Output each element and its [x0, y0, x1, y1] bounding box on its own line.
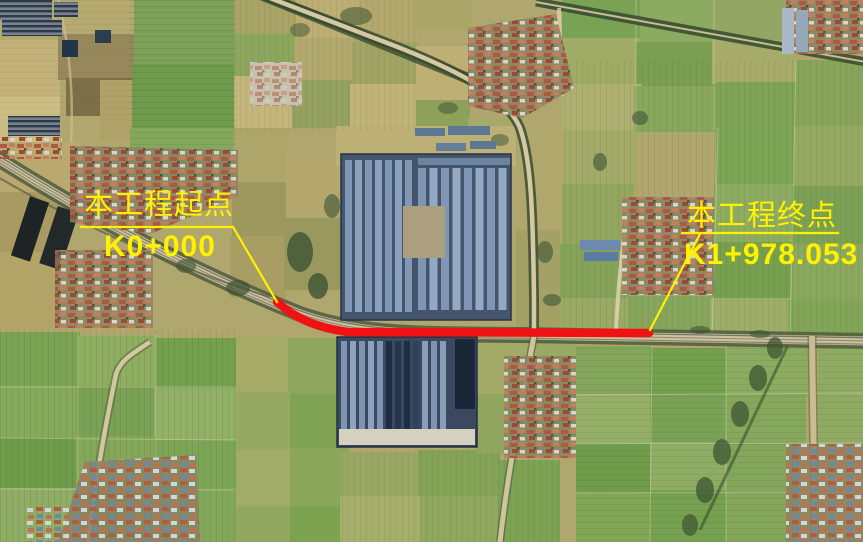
satellite-basemap [0, 0, 863, 542]
start-point-title: 本工程起点 [84, 188, 234, 222]
aerial-route-figure: 本工程起点 K0+000 本工程终点 K1+978.053 [0, 0, 863, 542]
start-point-label: 本工程起点 K0+000 [84, 188, 234, 262]
start-point-station: K0+000 [104, 232, 234, 262]
upper-factory-complex [341, 126, 511, 320]
end-point-title: 本工程终点 [687, 200, 858, 232]
end-point-station: K1+978.053 [684, 240, 858, 270]
end-point-label: 本工程终点 K1+978.053 [687, 200, 858, 270]
lower-factory-complex [337, 337, 477, 447]
